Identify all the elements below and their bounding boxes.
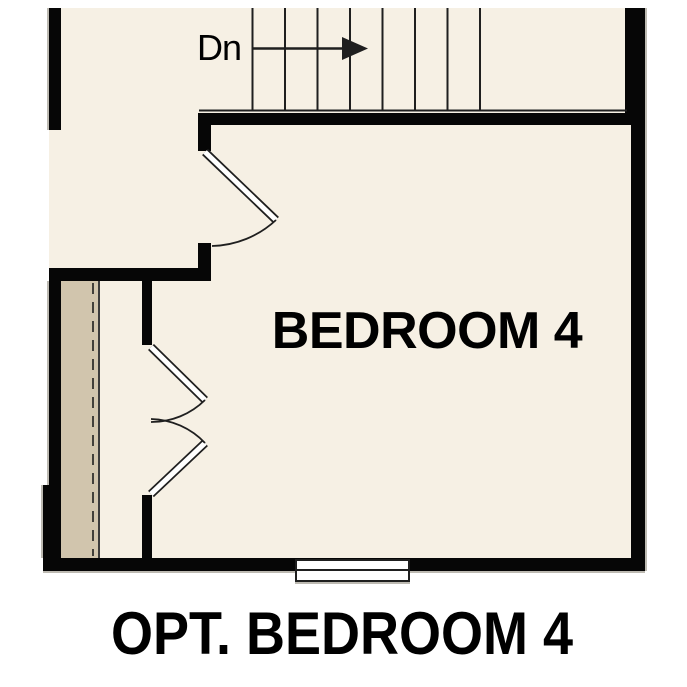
wall-bedroom-top — [198, 113, 645, 125]
wall-closet-stub-top — [142, 281, 152, 345]
wall-left-upper — [49, 8, 61, 130]
wall-right-lower — [631, 113, 645, 571]
room-label: BEDROOM 4 — [272, 305, 582, 357]
closet-floor — [61, 281, 100, 558]
floor-plan: Dn BEDROOM 4 OPT. BEDROOM 4 — [0, 0, 687, 687]
stairs-down-label: Dn — [197, 30, 241, 66]
wall-hall-horizontal — [49, 268, 211, 281]
wall-left-lower — [43, 485, 61, 558]
wall-left-mid — [49, 281, 61, 485]
wall-bedroom-left-upper-stub — [198, 113, 211, 151]
wall-right-upper — [625, 8, 645, 113]
plan-caption: OPT. BEDROOM 4 — [111, 604, 573, 664]
wall-closet-stub-bottom — [142, 495, 152, 558]
wall-bedroom-left-lower-stub — [198, 243, 211, 281]
window-divider-line — [297, 569, 408, 571]
window-symbol — [295, 559, 410, 582]
stair-hall-floor — [49, 8, 625, 113]
